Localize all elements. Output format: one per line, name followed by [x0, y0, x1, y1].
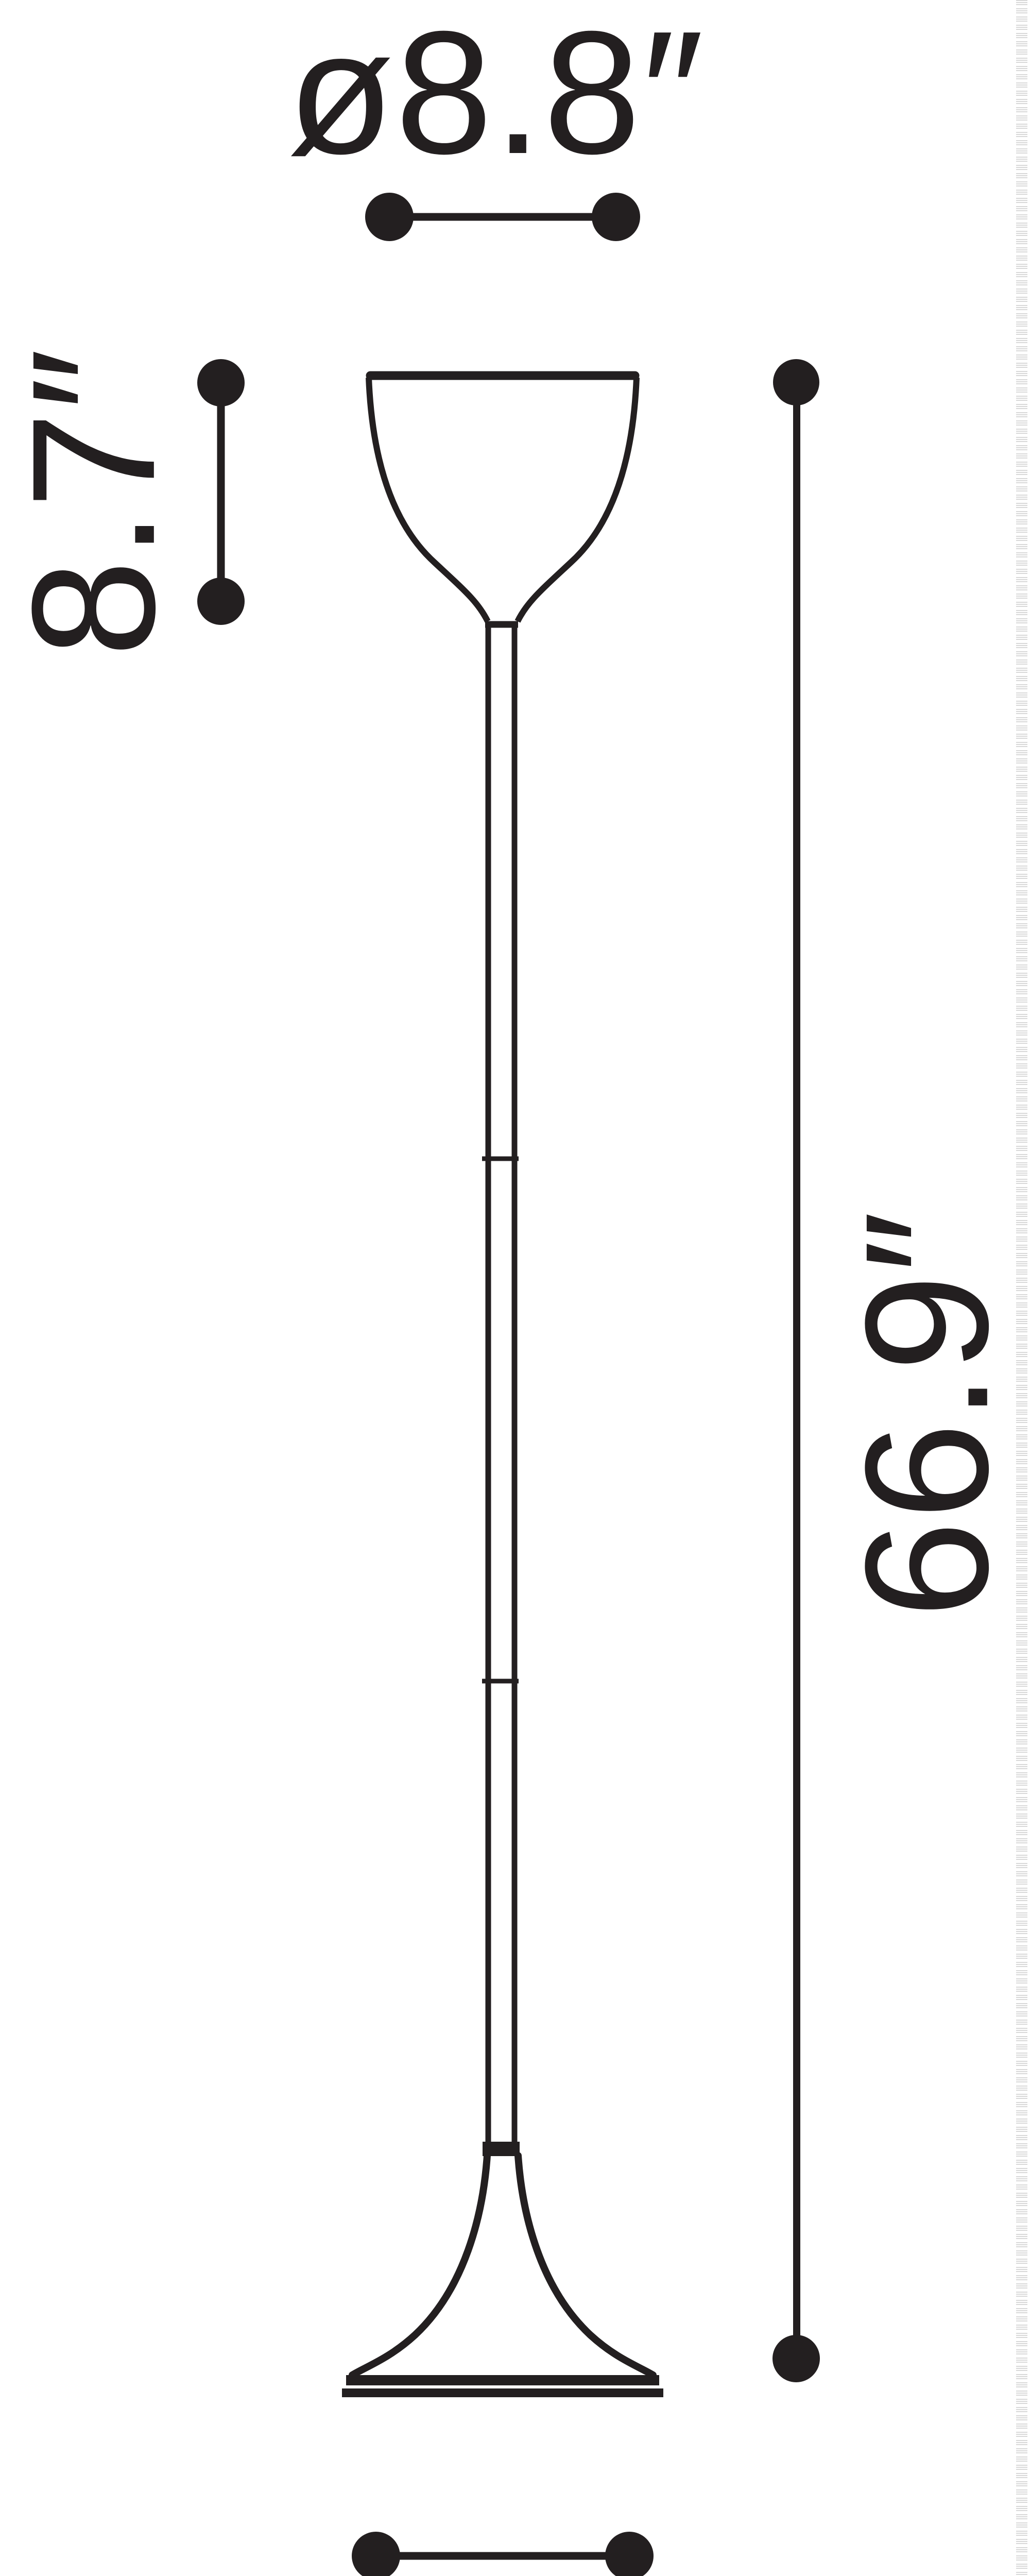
- dimension-lines: [197, 193, 820, 2576]
- shade-left-wall: [369, 378, 488, 621]
- base-flare-left: [352, 2156, 487, 2375]
- base-plate-top: [346, 2375, 659, 2385]
- dimension-endpoint-dot: [197, 578, 245, 625]
- dimension-line-shade-height: [197, 359, 245, 625]
- dimension-endpoint-dot: [592, 193, 640, 241]
- dimension-endpoint-dot: [197, 359, 245, 406]
- dimension-endpoint-dot: [773, 359, 819, 405]
- label-overall-height: 66.9″: [834, 1210, 1020, 1618]
- floor-lamp-outline: [342, 376, 663, 2397]
- dimension-endpoint-dot: [365, 193, 414, 241]
- label-shade-diameter: ø8.8″: [287, 0, 705, 185]
- dimension-line-shade-diameter: [365, 193, 640, 241]
- lamp-dimension-diagram: ø8.8″ 8.7″ 66.9″ ø9.8″: [0, 0, 1030, 2576]
- base-plate-bottom: [342, 2388, 663, 2397]
- label-shade-height: 8.7″: [1, 347, 186, 657]
- base-flare-right: [518, 2156, 653, 2375]
- dimension-line-overall-height: [772, 359, 820, 2382]
- dimension-endpoint-dot: [772, 2335, 820, 2382]
- label-base-diameter: ø9.8″: [297, 2570, 714, 2576]
- shade-right-wall: [518, 378, 637, 621]
